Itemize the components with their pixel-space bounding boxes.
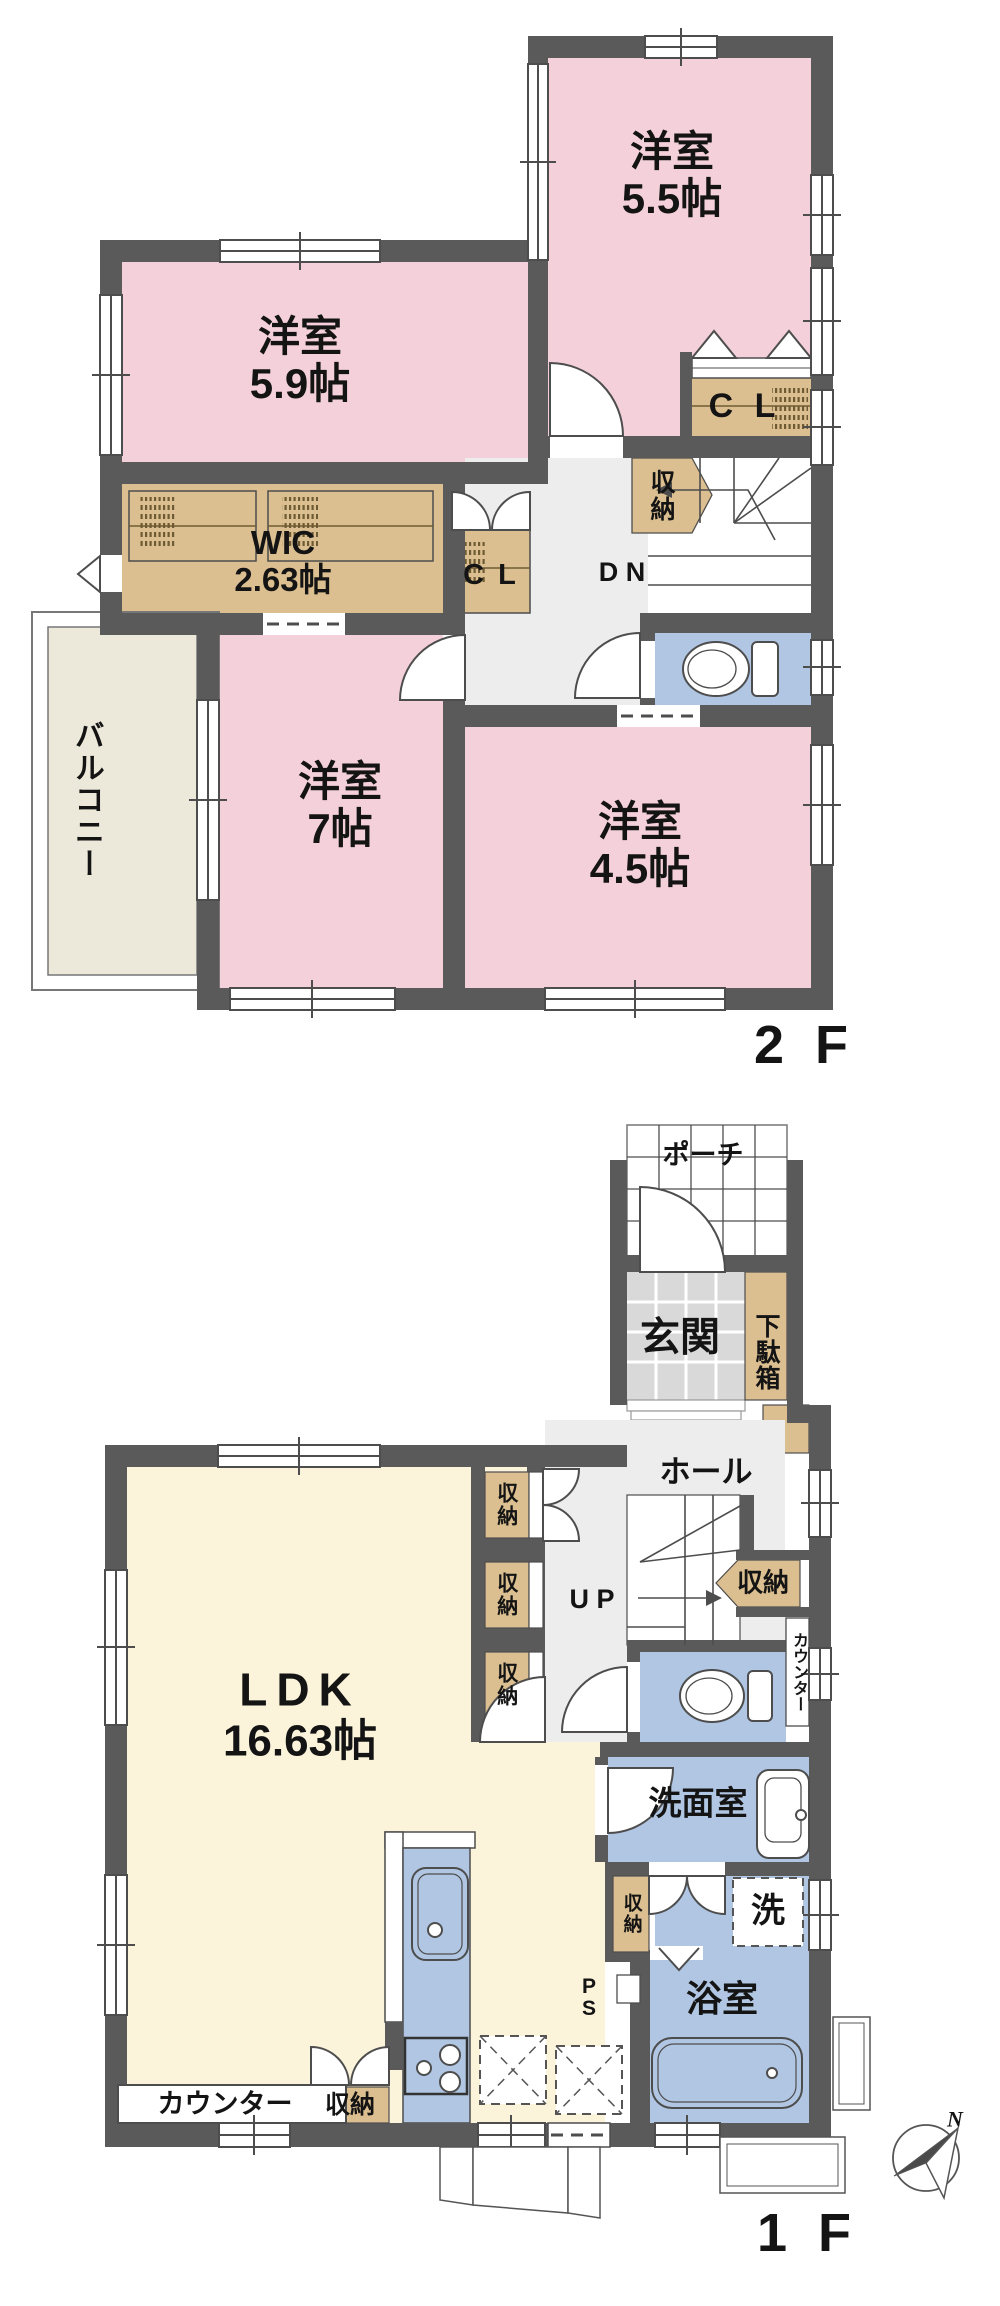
label-1f-ps: P S [581, 1976, 597, 2020]
label-1f-hall: ホール [660, 1456, 753, 1491]
label-2f-yoshitsu45: 洋室4.5帖 [590, 798, 690, 892]
floor-plan-drawing [0, 0, 1000, 2306]
ps-shaft [617, 1975, 640, 2003]
label-1f-senmen: 洗面室 [649, 1786, 748, 1823]
label-2f-yoshitsu59: 洋室5.9帖 [250, 313, 350, 407]
toilet-icon-1f [680, 1670, 772, 1722]
label-1f-shunou-south: 収納 [325, 2091, 375, 2119]
label-2f-cl-top: C L [709, 387, 782, 425]
label-2f-cl-mid: C L [463, 559, 519, 591]
label-2f-yoshitsu55: 洋室5.5帖 [622, 128, 722, 222]
label-1f-floor: 1 F [757, 2203, 859, 2263]
label-1f-getabako: 下駄箱 [752, 1313, 780, 1391]
label-1f-shunou-c: 収納 [494, 1662, 518, 1708]
label-2f-wic: WIC2.63帖 [234, 525, 331, 599]
toilet-icon-2f [683, 642, 778, 696]
label-1f-porch: ポーチ [663, 1140, 744, 1170]
label-1f-genkan: 玄関 [640, 1316, 720, 1361]
label-1f-laundry: 洗 [751, 1892, 785, 1930]
floor-plan: 洋室5.5帖 C L 収納 洋室5.9帖 WIC2.63帖 C L D N バル… [0, 0, 1000, 2306]
label-2f-floor: 2 F [754, 1015, 856, 1075]
label-1f-bath: 浴室 [686, 1979, 758, 2019]
label-1f-shunou-b: 収納 [494, 1572, 518, 1618]
label-1f-up: U P [569, 1584, 614, 1614]
label-1f-counter-south: カウンター [158, 2089, 293, 2119]
label-2f-yoshitsu7: 洋室7帖 [298, 758, 382, 852]
label-1f-ldk: LDK 16.63帖 [223, 1665, 377, 1766]
label-1f-counter-wc: カウンター [789, 1632, 807, 1712]
label-2f-dn: D N [599, 557, 646, 587]
label-compass-north: N [947, 2108, 963, 2133]
stairs-1f-floor [627, 1495, 740, 1645]
label-1f-shunou-laundry: 収納 [620, 1893, 641, 1935]
label-1f-shunou-hall: 収納 [737, 1568, 789, 1597]
compass-icon [893, 2125, 959, 2198]
label-1f-shunou-a: 収納 [494, 1482, 518, 1528]
stove-icon [405, 2038, 467, 2094]
label-2f-balcony: バルコニー [69, 720, 103, 880]
label-2f-shunou-stairs: 収納 [647, 469, 675, 523]
sink-icon-1f [757, 1770, 809, 1858]
